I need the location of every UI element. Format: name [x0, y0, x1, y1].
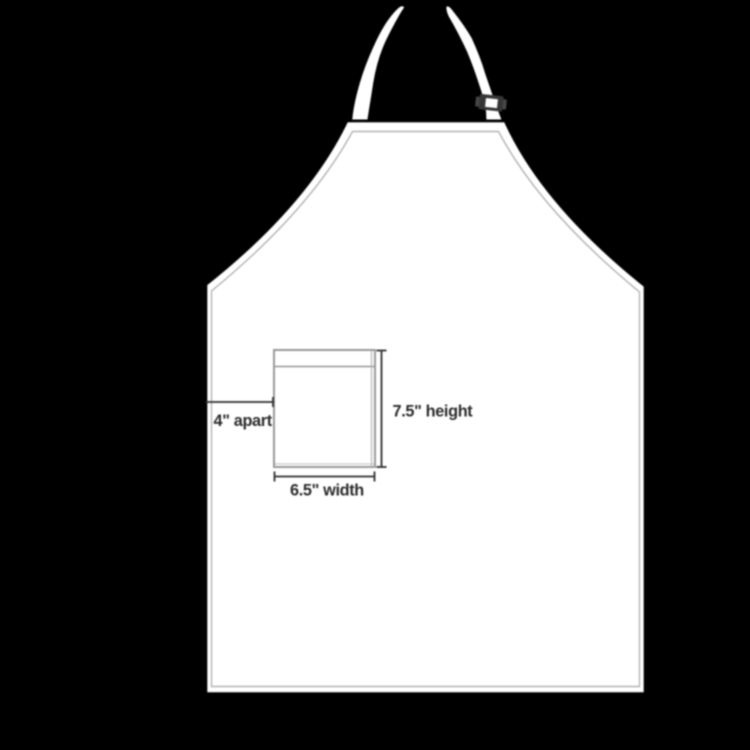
- svg-text:6.5" width: 6.5" width: [290, 482, 364, 500]
- svg-text:4" apart: 4" apart: [214, 412, 273, 430]
- svg-text:7.5" height: 7.5" height: [393, 403, 474, 421]
